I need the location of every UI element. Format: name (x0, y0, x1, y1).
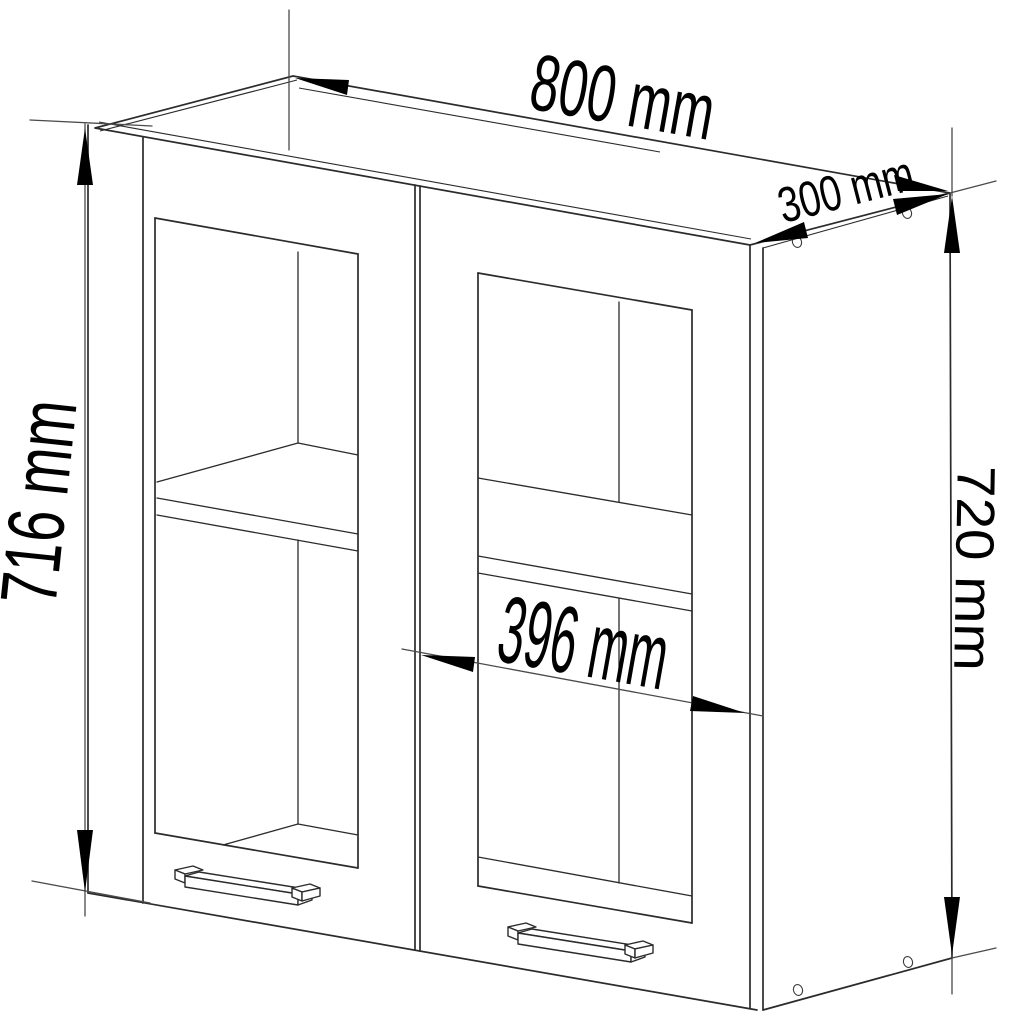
floor-depth-edge (223, 824, 298, 845)
cam-mark (902, 955, 914, 968)
arrowhead-bottom (77, 830, 93, 892)
dimension-depth: 300 mm (755, 145, 996, 243)
extension-line (950, 181, 996, 193)
drawing-canvas: 800 mm 300 mm 716 mm 720 mm 396 mm (0, 0, 1024, 1024)
left-glass-top-edge (155, 218, 358, 254)
extension-line (32, 881, 150, 903)
left-door (143, 137, 415, 950)
shelf-front-bottom-edge (157, 515, 358, 551)
interior-left-glass (157, 252, 358, 845)
cam-mark (792, 983, 804, 996)
dimension-door-width: 396 mm (402, 577, 763, 716)
arrowhead-right (690, 696, 745, 713)
bottom-front-edge (88, 893, 757, 1010)
extension-line (952, 948, 996, 958)
dimension-label-width: 800 mm (524, 37, 722, 157)
side-panel-bottom-edge (763, 958, 952, 1010)
right-glass-top-edge (478, 273, 692, 310)
shelf-front-top-edge (157, 498, 358, 534)
right-rail-top-edge (478, 886, 692, 923)
shelf-back-edge (298, 443, 358, 455)
arrowhead-top (944, 196, 960, 253)
shelf-back-line (478, 478, 692, 515)
arrowhead-left (421, 655, 475, 672)
shelf-top-depth-edge (157, 443, 298, 482)
cabinet-technical-drawing: 800 mm 300 mm 716 mm 720 mm 396 mm (0, 0, 1024, 1024)
dimension-label-front-height: 716 mm (0, 396, 94, 609)
floor-back-edge (298, 824, 358, 835)
dimension-label-side-height: 720 mm (942, 465, 1006, 671)
top-panel-left-edge (100, 80, 297, 131)
handle-left (175, 866, 320, 905)
extension-line (30, 120, 152, 126)
arrowhead-top (77, 128, 93, 185)
dimension-label-door-width: 396 mm (491, 577, 677, 711)
floor-back-edge (478, 857, 692, 896)
arrowhead-bottom (944, 897, 960, 955)
left-rail-top-edge (155, 833, 358, 868)
handle-right (508, 923, 653, 962)
right-door (420, 186, 692, 951)
dimension-front-height: 716 mm (0, 120, 152, 916)
